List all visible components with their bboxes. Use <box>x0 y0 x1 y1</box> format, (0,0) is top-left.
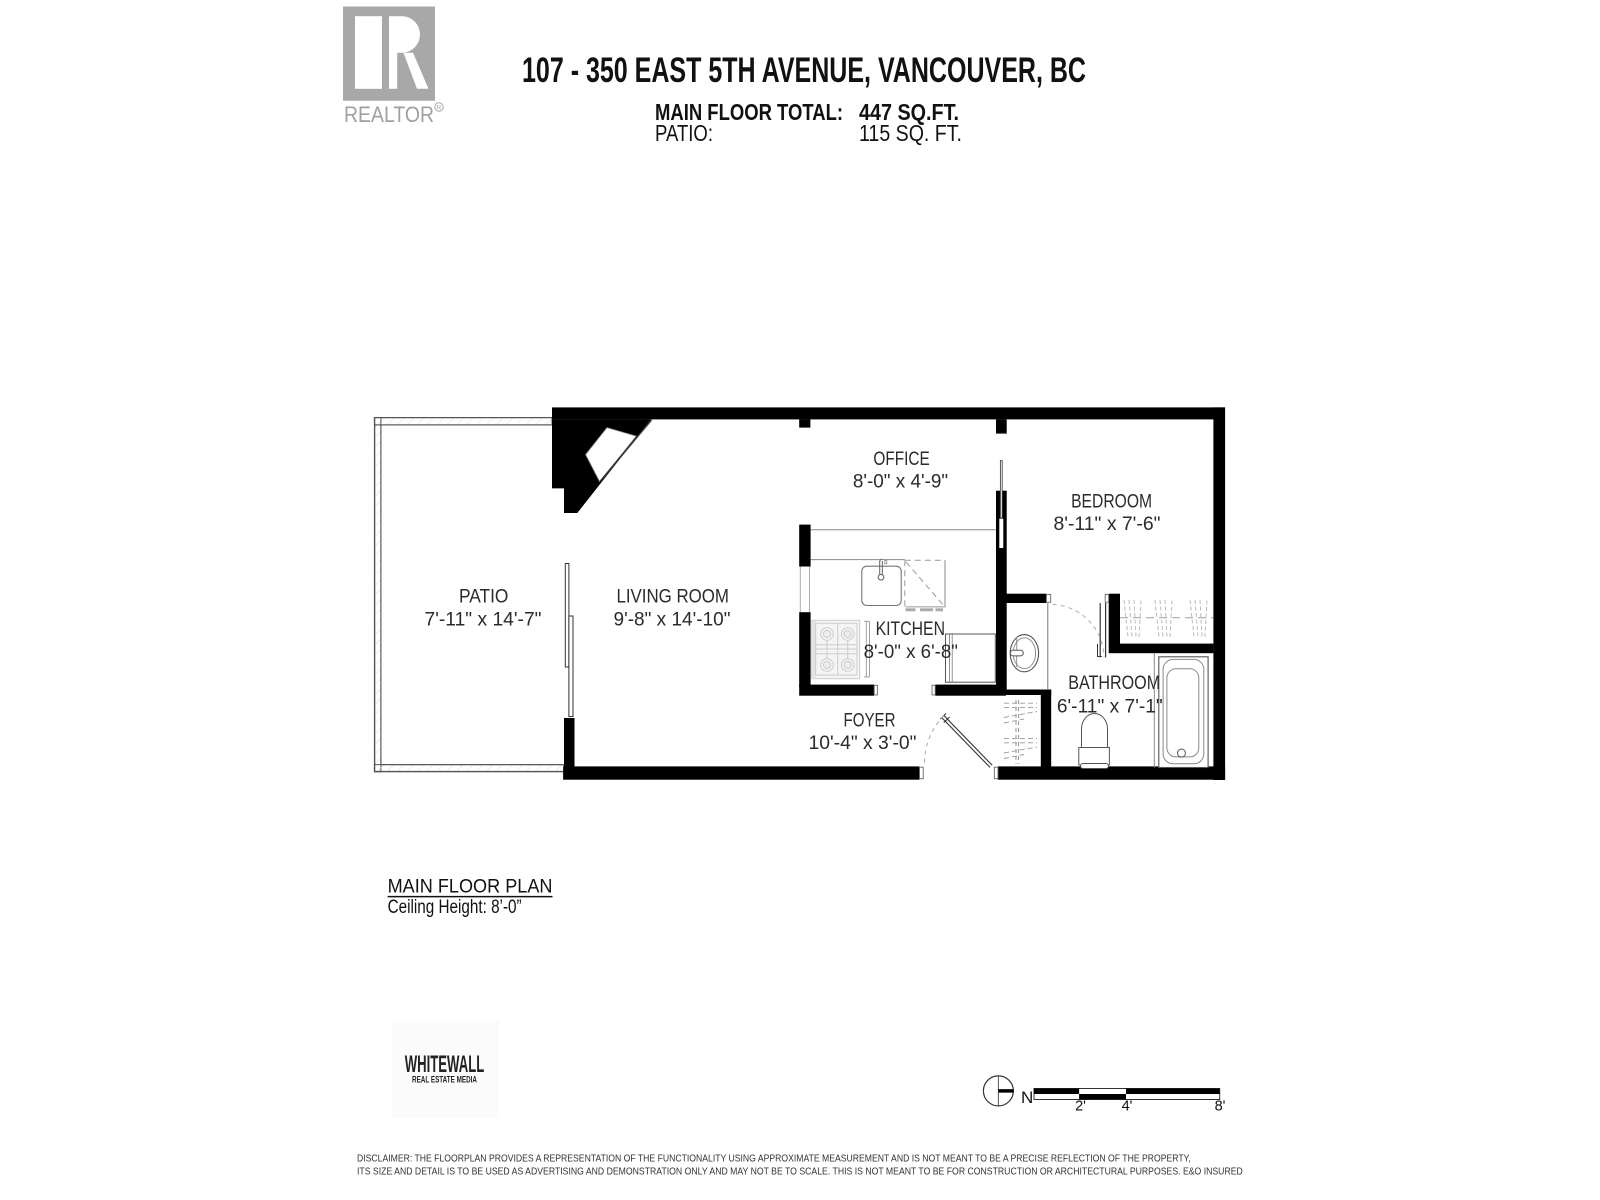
svg-text:FOYER: FOYER <box>844 710 896 732</box>
svg-text:2': 2' <box>1075 1099 1086 1115</box>
svg-text:KITCHEN: KITCHEN <box>876 618 945 640</box>
svg-text:REALTOR: REALTOR <box>344 102 434 127</box>
svg-text:PATIO: PATIO <box>459 586 509 608</box>
svg-text:8'-0" x 4'-9": 8'-0" x 4'-9" <box>853 471 948 493</box>
svg-text:LIVING ROOM: LIVING ROOM <box>616 586 729 608</box>
svg-text:BEDROOM: BEDROOM <box>1071 490 1152 512</box>
svg-text:6'-11" x 7'-1": 6'-11" x 7'-1" <box>1057 696 1163 718</box>
svg-text:7'-11" x 14'-7": 7'-11" x 14'-7" <box>425 609 542 631</box>
svg-text:DISCLAIMER: THE FLOORPLAN PROV: DISCLAIMER: THE FLOORPLAN PROVIDES A REP… <box>357 1153 1191 1165</box>
svg-text:N: N <box>1021 1088 1033 1107</box>
svg-text:8'-11" x 7'-6": 8'-11" x 7'-6" <box>1054 513 1161 535</box>
svg-text:10'-4" x 3'-0": 10'-4" x 3'-0" <box>809 732 917 754</box>
svg-text:R: R <box>437 105 442 112</box>
svg-text:BATHROOM: BATHROOM <box>1068 672 1160 694</box>
svg-text:ITS SIZE AND DETAIL IS TO BE U: ITS SIZE AND DETAIL IS TO BE USED AS ADV… <box>357 1165 1243 1177</box>
svg-text:Ceiling Height: 8’-0”: Ceiling Height: 8’-0” <box>388 897 522 918</box>
svg-text:PATIO:: PATIO: <box>655 120 713 146</box>
svg-text:4': 4' <box>1122 1099 1133 1115</box>
svg-text:8'-0" x 6'-8": 8'-0" x 6'-8" <box>864 641 958 663</box>
svg-text:OFFICE: OFFICE <box>873 448 929 470</box>
svg-text:MAIN FLOOR PLAN: MAIN FLOOR PLAN <box>388 876 553 898</box>
svg-text:REAL ESTATE MEDIA: REAL ESTATE MEDIA <box>412 1075 477 1085</box>
svg-text:107 - 350 EAST 5TH AVENUE, VAN: 107 - 350 EAST 5TH AVENUE, VANCOUVER, BC <box>522 51 1086 90</box>
svg-text:8': 8' <box>1215 1099 1226 1115</box>
svg-text:9'-8" x 14'-10": 9'-8" x 14'-10" <box>614 609 731 631</box>
svg-text:115 SQ. FT.: 115 SQ. FT. <box>859 120 962 146</box>
